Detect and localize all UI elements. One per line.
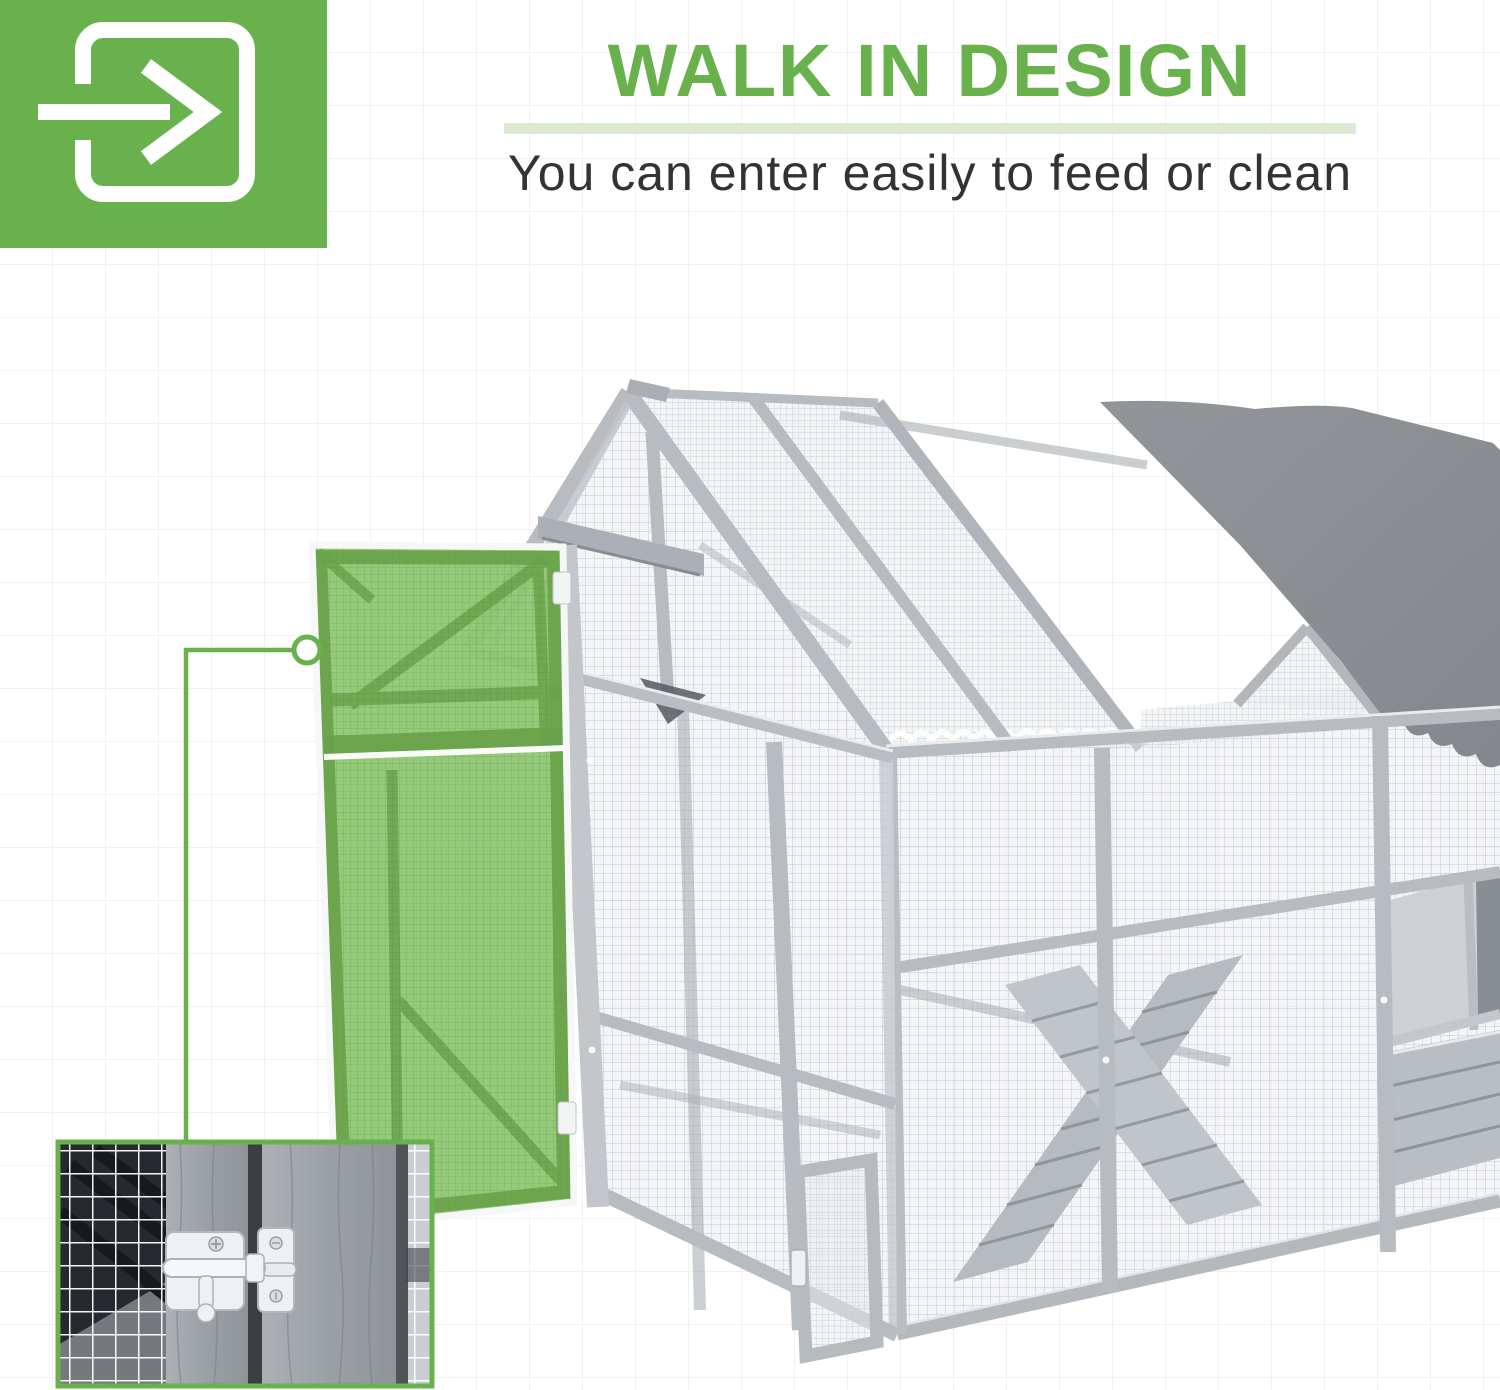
- page: WALK IN DESIGN You can enter easily to f…: [0, 0, 1500, 1390]
- callout-anchor-circle: [294, 637, 320, 663]
- latch-bolt: [163, 1228, 296, 1322]
- product-illustration: [0, 0, 1500, 1390]
- chicken-door: [791, 1160, 877, 1356]
- door-hinge-top: [553, 572, 571, 604]
- walk-in-door-highlight: [312, 545, 576, 1228]
- door-callout: [186, 637, 320, 1145]
- latch-inset: [58, 1142, 432, 1386]
- chicken-door-latch: [791, 1250, 806, 1286]
- nesting-shelf: [1390, 870, 1500, 1045]
- run-section: [886, 713, 1500, 1335]
- door-hinge-bottom: [558, 1102, 576, 1134]
